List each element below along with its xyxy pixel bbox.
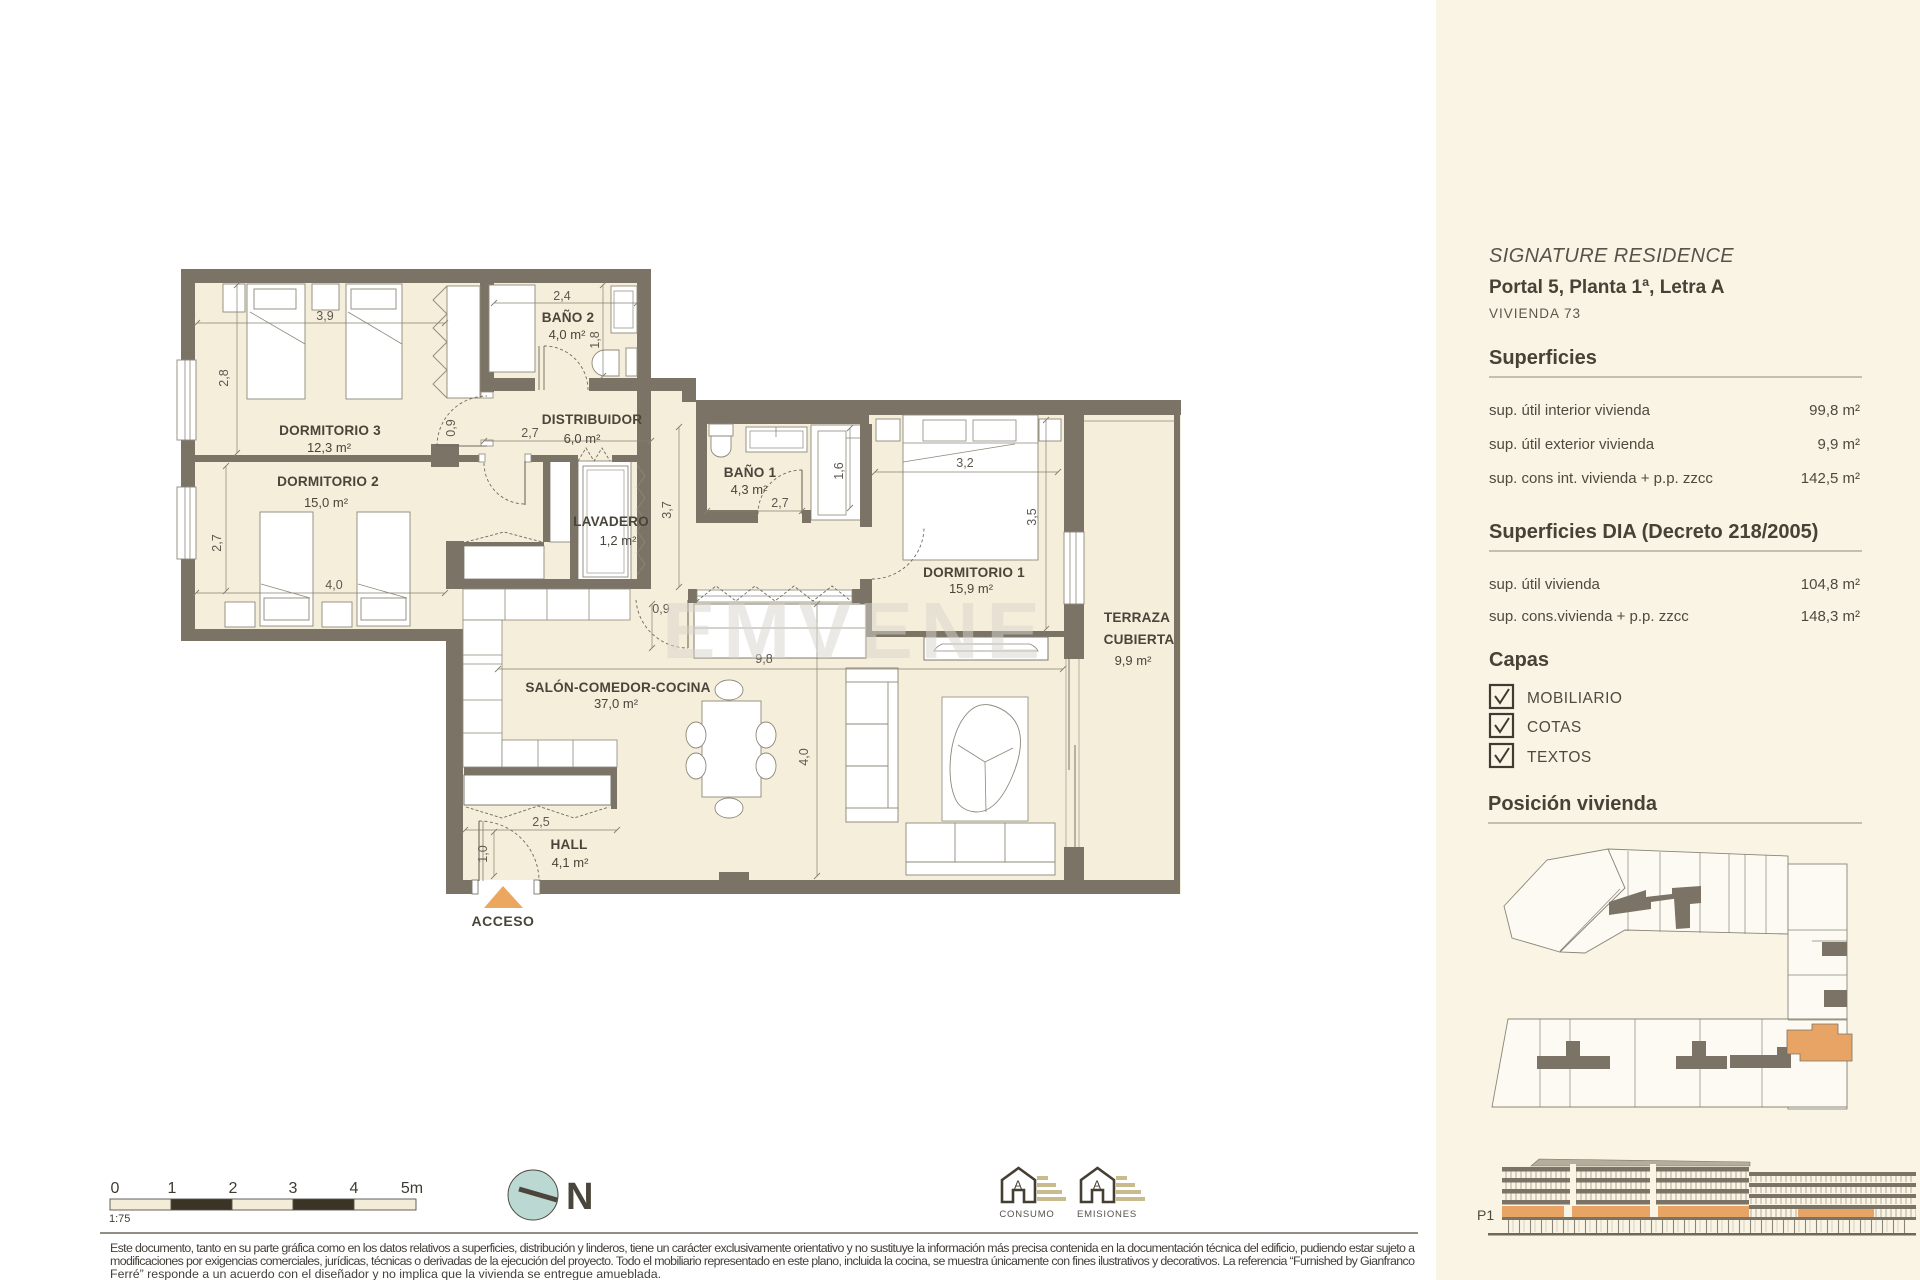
svg-text:sup. útil interior vivienda: sup. útil interior vivienda: [1489, 402, 1651, 419]
svg-text:3,2: 3,2: [956, 456, 973, 470]
svg-text:3,5: 3,5: [1025, 508, 1039, 525]
svg-text:99,8 m²: 99,8 m²: [1809, 402, 1860, 419]
svg-text:A: A: [1014, 1178, 1022, 1192]
svg-text:4,0: 4,0: [797, 748, 811, 765]
svg-text:TEXTOS: TEXTOS: [1527, 749, 1592, 766]
svg-text:sup. cons int. vivienda + p.p.: sup. cons int. vivienda + p.p. zzcc: [1489, 470, 1713, 487]
svg-text:4,1 m²: 4,1 m²: [552, 855, 590, 870]
svg-text:A: A: [1093, 1178, 1101, 1192]
svg-text:104,8 m²: 104,8 m²: [1801, 576, 1860, 593]
svg-text:2,8: 2,8: [217, 369, 231, 386]
svg-text:BAÑO 2: BAÑO 2: [542, 310, 595, 325]
svg-text:1,2 m²: 1,2 m²: [600, 533, 638, 548]
svg-text:sup. cons.vivienda + p.p. zzcc: sup. cons.vivienda + p.p. zzcc: [1489, 608, 1689, 625]
svg-text:DORMITORIO 2: DORMITORIO 2: [277, 474, 379, 489]
svg-text:Portal 5, Planta 1ª, Letra A: Portal 5, Planta 1ª, Letra A: [1489, 277, 1725, 298]
svg-text:1,6: 1,6: [832, 462, 846, 479]
svg-text:3,7: 3,7: [660, 501, 674, 518]
svg-text:148,3 m²: 148,3 m²: [1801, 608, 1860, 625]
svg-text:5m: 5m: [401, 1180, 423, 1197]
svg-text:EMVENE: EMVENE: [662, 586, 1048, 675]
svg-text:2,7: 2,7: [771, 496, 788, 510]
svg-text:4: 4: [350, 1180, 359, 1197]
svg-text:Capas: Capas: [1489, 649, 1549, 671]
svg-text:P1: P1: [1477, 1207, 1494, 1223]
svg-text:HALL: HALL: [550, 837, 587, 852]
svg-text:SALÓN-COMEDOR-COCINA: SALÓN-COMEDOR-COCINA: [525, 680, 710, 695]
svg-text:VIVIENDA 73: VIVIENDA 73: [1489, 306, 1581, 321]
svg-text:9,9 m²: 9,9 m²: [1115, 653, 1153, 668]
svg-text:N: N: [566, 1176, 593, 1218]
svg-text:1:75: 1:75: [109, 1213, 130, 1225]
svg-text:37,0 m²: 37,0 m²: [594, 696, 639, 711]
svg-text:Superficies DIA (Decreto 218/2: Superficies DIA (Decreto 218/2005): [1489, 521, 1818, 543]
svg-text:1,0: 1,0: [476, 845, 490, 862]
svg-text:9,9 m²: 9,9 m²: [1817, 436, 1860, 453]
svg-text:COTAS: COTAS: [1527, 719, 1582, 736]
svg-text:DISTRIBUIDOR: DISTRIBUIDOR: [542, 412, 643, 427]
svg-text:1,8: 1,8: [588, 331, 602, 348]
svg-text:1: 1: [168, 1180, 177, 1197]
svg-text:ACCESO: ACCESO: [472, 913, 535, 929]
svg-text:CUBIERTA: CUBIERTA: [1104, 632, 1175, 647]
svg-text:3,9: 3,9: [316, 309, 333, 323]
svg-text:LAVADERO: LAVADERO: [573, 514, 649, 529]
svg-text:CONSUMO: CONSUMO: [999, 1209, 1054, 1220]
svg-text:2,7: 2,7: [521, 426, 538, 440]
svg-text:2,7: 2,7: [210, 534, 224, 551]
svg-text:Este documento, tanto en su pa: Este documento, tanto en su parte gráfic…: [110, 1241, 1415, 1255]
svg-text:BAÑO 1: BAÑO 1: [724, 465, 777, 480]
svg-text:DORMITORIO 1: DORMITORIO 1: [923, 565, 1025, 580]
svg-text:sup. útil exterior vivienda: sup. útil exterior vivienda: [1489, 436, 1655, 453]
svg-text:sup. útil vivienda: sup. útil vivienda: [1489, 576, 1601, 593]
svg-text:4,3 m²: 4,3 m²: [731, 482, 769, 497]
svg-text:TERRAZA: TERRAZA: [1104, 610, 1170, 625]
svg-text:4,0: 4,0: [325, 578, 342, 592]
svg-text:142,5 m²: 142,5 m²: [1801, 470, 1860, 487]
svg-text:modificaciones por exigencias: modificaciones por exigencias comerciale…: [110, 1254, 1415, 1268]
svg-text:15,0 m²: 15,0 m²: [304, 495, 349, 510]
svg-text:2: 2: [229, 1180, 238, 1197]
svg-text:Posición vivienda: Posición vivienda: [1488, 793, 1658, 815]
svg-text:SIGNATURE RESIDENCE: SIGNATURE RESIDENCE: [1489, 245, 1734, 267]
svg-text:12,3 m²: 12,3 m²: [307, 440, 352, 455]
svg-text:0: 0: [111, 1180, 120, 1197]
svg-text:2,4: 2,4: [553, 289, 570, 303]
svg-text:6,0 m²: 6,0 m²: [564, 431, 602, 446]
svg-text:2,5: 2,5: [532, 815, 549, 829]
svg-text:MOBILIARIO: MOBILIARIO: [1527, 690, 1622, 707]
svg-text:4,0 m²: 4,0 m²: [549, 327, 587, 342]
svg-text:Ferré” responde a un acuerdo c: Ferré” responde a un acuerdo con el dise…: [110, 1267, 661, 1280]
svg-text:0,9: 0,9: [444, 419, 458, 436]
svg-text:Superficies: Superficies: [1489, 347, 1597, 369]
svg-text:DORMITORIO 3: DORMITORIO 3: [279, 423, 381, 438]
svg-text:EMISIONES: EMISIONES: [1077, 1209, 1137, 1220]
svg-text:3: 3: [289, 1180, 298, 1197]
